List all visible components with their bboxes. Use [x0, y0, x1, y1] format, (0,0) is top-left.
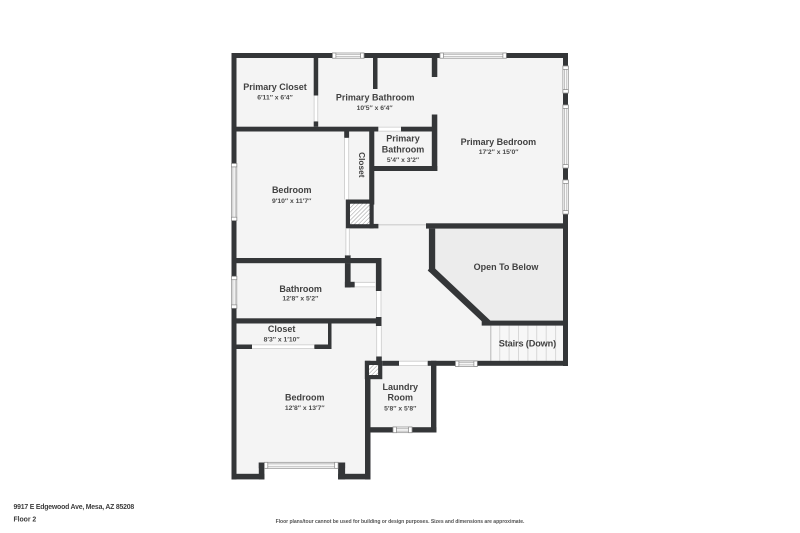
svg-text:8′3″ x 1′10″: 8′3″ x 1′10″ [264, 337, 301, 344]
svg-text:Closet: Closet [357, 152, 367, 178]
svg-text:9′10″ x 11′7″: 9′10″ x 11′7″ [272, 198, 312, 205]
svg-text:Primary Closet: Primary Closet [243, 82, 307, 92]
svg-text:5′4″ x 3′2″: 5′4″ x 3′2″ [387, 157, 420, 164]
svg-text:Room: Room [388, 392, 414, 402]
svg-text:Bedroom: Bedroom [272, 185, 312, 195]
svg-text:Open To Below: Open To Below [474, 262, 540, 272]
svg-text:5′8″ x 5′8″: 5′8″ x 5′8″ [384, 405, 417, 412]
svg-text:12′8″ x 5′2″: 12′8″ x 5′2″ [282, 295, 319, 302]
svg-text:Stairs (Down): Stairs (Down) [499, 339, 556, 349]
svg-text:Primary Bathroom: Primary Bathroom [336, 93, 415, 103]
svg-text:12′8″ x 13′7″: 12′8″ x 13′7″ [285, 405, 325, 412]
svg-text:Laundry: Laundry [383, 382, 419, 392]
svg-text:10′5″ x 6′4″: 10′5″ x 6′4″ [357, 105, 394, 112]
svg-text:Closet: Closet [268, 324, 296, 334]
svg-text:Bedroom: Bedroom [285, 393, 325, 403]
svg-text:Primary Bedroom: Primary Bedroom [461, 137, 537, 147]
svg-text:Bathroom: Bathroom [382, 144, 425, 154]
svg-text:9917 E Edgewood Ave, Mesa, AZ: 9917 E Edgewood Ave, Mesa, AZ 85208 [14, 504, 135, 511]
svg-text:17′2″ x 15′0″: 17′2″ x 15′0″ [479, 149, 519, 156]
svg-text:Floor plans/tour cannot be use: Floor plans/tour cannot be used for buil… [276, 519, 525, 525]
svg-text:Floor 2: Floor 2 [14, 517, 37, 524]
svg-text:Primary: Primary [386, 134, 420, 144]
svg-text:6′11″ x 6′4″: 6′11″ x 6′4″ [257, 94, 293, 101]
svg-text:Bathroom: Bathroom [279, 284, 322, 294]
